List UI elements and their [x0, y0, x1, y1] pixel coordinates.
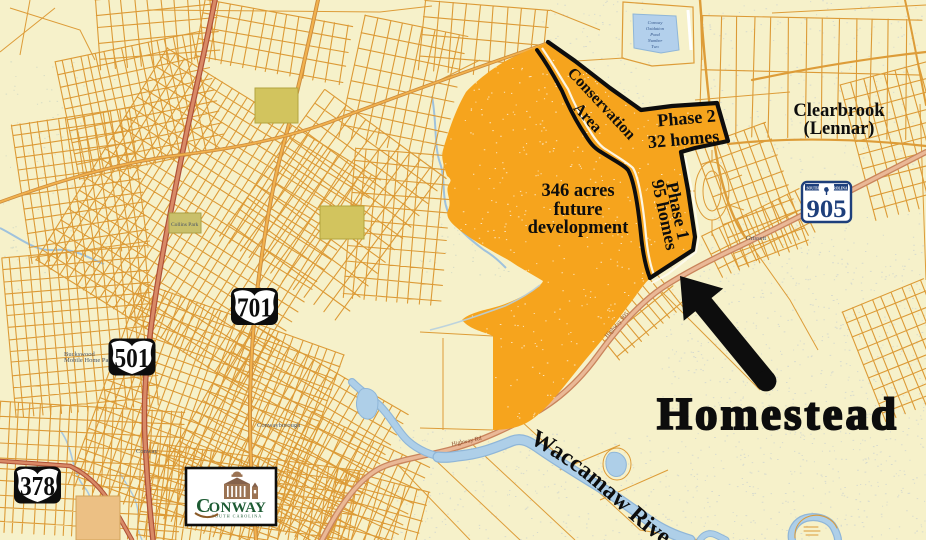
svg-text:Number: Number [647, 38, 663, 43]
svg-text:378: 378 [20, 470, 55, 501]
svg-text:Conwayborough: Conwayborough [257, 422, 301, 429]
svg-text:Mobile Home Park: Mobile Home Park [64, 357, 115, 364]
svg-text:Pond: Pond [649, 32, 660, 37]
svg-text:501: 501 [115, 342, 150, 373]
svg-text:Oxidation: Oxidation [646, 26, 665, 31]
svg-text:SOUTH CAROLINA: SOUTH CAROLINA [212, 514, 263, 519]
svg-text:SOUTH: SOUTH [807, 186, 820, 190]
svg-text:Conway: Conway [648, 20, 663, 25]
svg-text:CAROLINA: CAROLINA [828, 186, 848, 190]
svg-text:905: 905 [807, 194, 847, 223]
svg-text:Homestead: Homestead [657, 389, 899, 439]
svg-text:Two: Two [651, 44, 659, 49]
svg-text:Clearbrook: Clearbrook [793, 101, 885, 121]
svg-text:Grissett: Grissett [746, 235, 766, 242]
svg-text:346 acres: 346 acres [541, 181, 614, 201]
svg-text:future: future [554, 200, 603, 220]
svg-text:Conway: Conway [136, 448, 158, 455]
svg-text:701: 701 [237, 292, 272, 323]
svg-text:development: development [528, 218, 630, 238]
svg-text:Collins Park: Collins Park [171, 222, 199, 228]
svg-text:(Lennar): (Lennar) [804, 119, 875, 139]
